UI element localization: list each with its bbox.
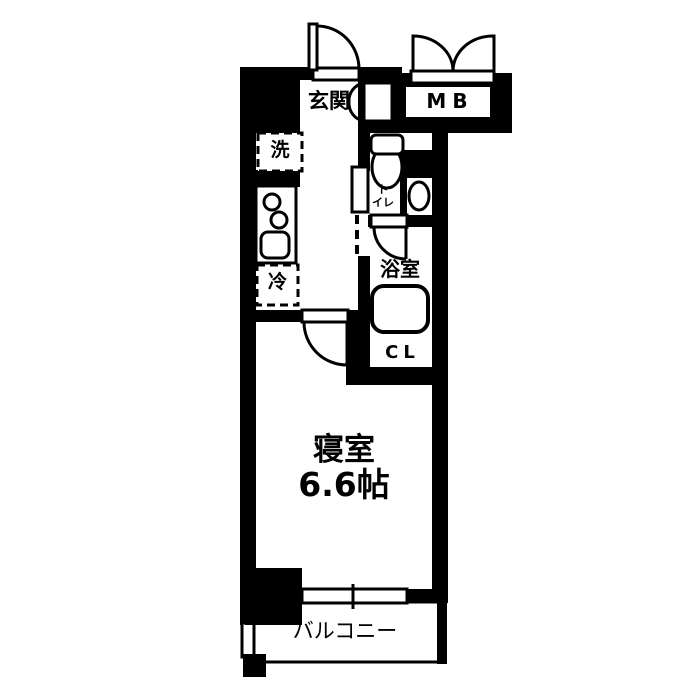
- mb-door-right: [453, 36, 494, 71]
- bathtub: [372, 286, 428, 332]
- meter-box-label: MB: [402, 91, 492, 112]
- wall-washer-strip: [256, 170, 300, 187]
- entrance-door-arc: [317, 26, 359, 69]
- pillar: [245, 568, 302, 625]
- wall-top-left: [240, 67, 315, 80]
- wall-bath-left-top: [358, 133, 370, 171]
- mb-door-left: [413, 36, 453, 71]
- floorplan-canvas: 玄関 MB 洗 冷 ト イレ 浴室 CL 寝室 6.6帖 バルコニー: [0, 0, 700, 700]
- balcony-label: バルコニー: [252, 620, 438, 642]
- kitchen-sink: [261, 232, 289, 258]
- wall-under-closet: [368, 367, 448, 385]
- toilet-door: [352, 167, 368, 212]
- wall-entry-block: [240, 80, 300, 133]
- bedroom-label: 寝室: [256, 434, 432, 467]
- stove-burner-2: [271, 212, 287, 228]
- stove-burner-1: [264, 194, 280, 210]
- wall-window-right: [407, 589, 448, 603]
- entrance-door-leaf: [309, 24, 317, 70]
- bedroom-size-label: 6.6帖: [256, 468, 432, 503]
- toilet-label: ト イレ: [368, 183, 398, 209]
- entrance-door-sill: [313, 68, 359, 80]
- bedroom-door-sill: [302, 310, 348, 322]
- wall-bedroom-top-left: [240, 310, 302, 322]
- mb-door-sill: [411, 71, 494, 83]
- wall-balcony-right: [437, 603, 447, 664]
- washer-label: 洗: [258, 141, 302, 161]
- closet-label: CL: [368, 344, 432, 363]
- bathroom-door-sill: [371, 215, 407, 227]
- bathroom-label: 浴室: [368, 259, 432, 280]
- wall-left: [240, 67, 256, 625]
- toilet-tank: [371, 135, 403, 154]
- fridge-label: 冷: [257, 273, 298, 293]
- wall-door-corner-block: [346, 310, 370, 385]
- wall-balcony-corner: [243, 654, 266, 677]
- entrance-label: 玄関: [300, 90, 358, 112]
- toilet-hand-basin: [409, 182, 429, 210]
- shoe-cabinet: [364, 83, 392, 121]
